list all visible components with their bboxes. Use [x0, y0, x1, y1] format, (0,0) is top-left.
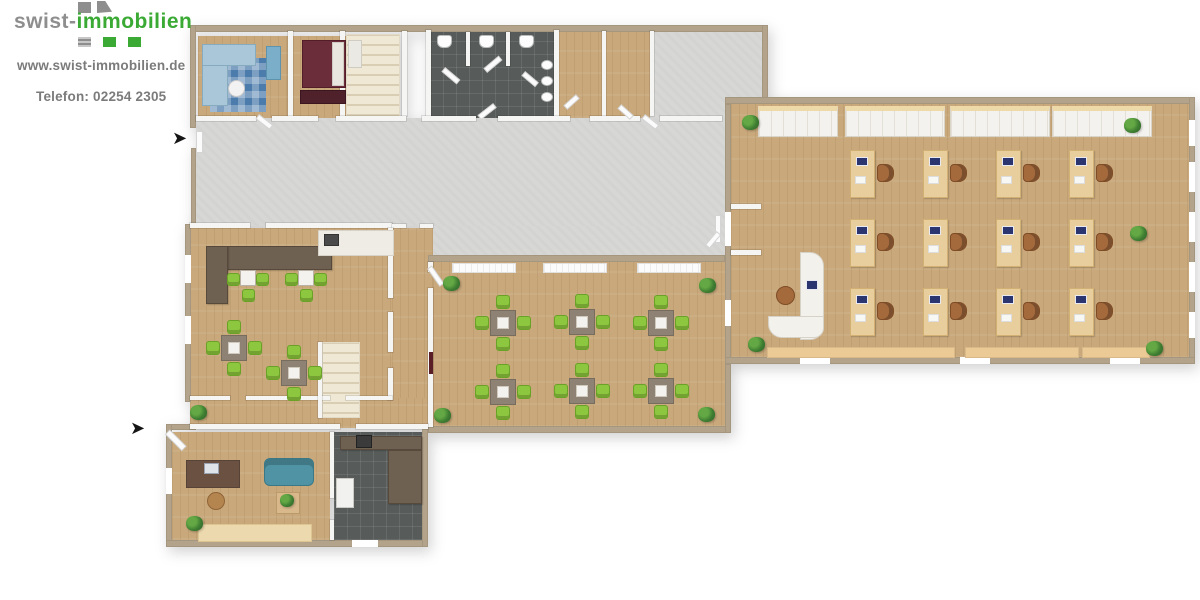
wall — [336, 116, 406, 121]
logo-block-icon — [128, 37, 141, 47]
wall — [196, 116, 256, 121]
monitor — [856, 226, 868, 235]
wall — [725, 364, 731, 433]
bistro-table — [240, 270, 256, 286]
toilet — [479, 35, 494, 48]
wall — [402, 31, 407, 116]
shelf-unit — [845, 106, 945, 137]
phone-text: Telefon: 02254 2305 — [36, 89, 166, 104]
monitor — [929, 295, 941, 304]
floor-plan — [0, 0, 1200, 600]
logo-text-suffix: immobilien — [77, 10, 193, 33]
paper — [928, 176, 939, 184]
plant — [280, 494, 294, 507]
wall — [388, 312, 393, 352]
window-blind — [543, 263, 607, 273]
green-chair — [596, 384, 610, 398]
green-chair — [654, 405, 668, 419]
green-chair — [227, 362, 241, 376]
green-chair — [654, 337, 668, 351]
logo-text-prefix: swist- — [14, 10, 77, 33]
wall — [356, 424, 428, 429]
door-leaf — [197, 132, 202, 152]
wall — [422, 116, 476, 121]
green-chair — [256, 273, 269, 286]
radiator — [767, 347, 955, 358]
monitor — [1002, 226, 1014, 235]
door-gap — [725, 212, 731, 246]
window — [185, 316, 191, 344]
meeting-table — [569, 378, 595, 404]
entrance-arrow-icon: ➤ — [172, 129, 187, 147]
meeting-table — [490, 310, 516, 336]
wardrobe — [348, 40, 362, 68]
plant — [434, 408, 451, 423]
wall — [190, 424, 340, 429]
paper — [1001, 314, 1012, 322]
monitor — [1075, 226, 1087, 235]
plant — [748, 337, 765, 352]
green-chair — [575, 336, 589, 350]
stove — [356, 435, 372, 448]
green-chair — [227, 320, 241, 334]
green-chair — [633, 384, 647, 398]
paper — [1074, 314, 1085, 322]
table-top — [497, 386, 509, 398]
table-top — [288, 367, 300, 379]
floor-plan-render: swist-immobilien www.swist-immobilien.de… — [0, 0, 1200, 600]
kitchen-counter — [388, 450, 422, 504]
green-chair — [654, 295, 668, 309]
wall — [346, 396, 392, 400]
wall — [426, 30, 431, 120]
office-chair — [1023, 233, 1040, 251]
wall — [590, 116, 640, 121]
monitor — [1002, 295, 1014, 304]
desk-chair — [207, 492, 225, 510]
radiator — [965, 347, 1079, 358]
wall — [660, 116, 722, 121]
laptop — [204, 463, 219, 474]
window — [960, 357, 990, 364]
table-top — [576, 316, 588, 328]
table-top — [655, 317, 667, 329]
green-chair — [675, 384, 689, 398]
monitor — [856, 295, 868, 304]
table-top — [228, 342, 240, 354]
wall — [266, 223, 392, 228]
wall — [392, 224, 406, 228]
green-chair — [314, 273, 327, 286]
bar-counter — [206, 246, 228, 304]
wall — [498, 116, 570, 121]
logo-block-icon — [103, 37, 116, 47]
green-chair — [575, 294, 589, 308]
window-blind — [452, 263, 516, 273]
toilet — [519, 35, 534, 48]
paper — [855, 314, 866, 322]
meeting-table — [281, 360, 307, 386]
hall-main — [196, 118, 725, 226]
meeting-table — [648, 310, 674, 336]
wall — [554, 30, 559, 120]
office-chair — [950, 302, 967, 320]
window — [1110, 357, 1140, 364]
hall-strip — [428, 226, 725, 258]
green-chair — [496, 295, 510, 309]
urinal — [541, 92, 553, 102]
green-chair — [633, 316, 647, 330]
wall — [428, 426, 731, 433]
monitor — [1075, 157, 1087, 166]
plant — [443, 276, 460, 291]
logo: swist-immobilien — [14, 10, 192, 34]
wall — [330, 432, 334, 498]
office-chair — [950, 233, 967, 251]
green-chair — [517, 385, 531, 399]
green-chair — [575, 363, 589, 377]
green-chair — [266, 366, 280, 380]
website-text: www.swist-immobilien.de — [17, 58, 185, 73]
meeting-table — [490, 379, 516, 405]
green-chair — [654, 363, 668, 377]
office-chair — [950, 164, 967, 182]
wall — [762, 25, 768, 103]
green-chair — [575, 405, 589, 419]
monitor — [929, 226, 941, 235]
wall — [318, 342, 322, 418]
green-chair — [517, 316, 531, 330]
green-chair — [287, 387, 301, 401]
monitor — [856, 157, 868, 166]
cabinet — [266, 46, 281, 80]
sofa — [202, 44, 256, 66]
table-top — [497, 317, 509, 329]
wall — [330, 520, 334, 540]
plant — [1124, 118, 1141, 133]
monitor — [1075, 295, 1087, 304]
radiator — [1082, 347, 1150, 358]
bistro-table — [298, 270, 314, 286]
wall — [185, 224, 191, 402]
urinal — [541, 60, 553, 70]
urinal — [541, 76, 553, 86]
wall — [190, 25, 196, 128]
office-chair — [877, 164, 894, 182]
window — [1189, 312, 1195, 338]
cabinet — [300, 90, 346, 104]
staircase-bottom — [322, 342, 360, 418]
wall — [190, 25, 768, 32]
green-chair — [248, 341, 262, 355]
wall — [272, 116, 318, 121]
green-chair — [675, 316, 689, 330]
green-chair — [308, 366, 322, 380]
reception-desk — [768, 316, 824, 338]
window — [1189, 212, 1195, 242]
green-chair — [475, 385, 489, 399]
plant — [742, 115, 759, 130]
pillow — [332, 42, 344, 86]
green-chair — [300, 289, 313, 302]
green-chair — [496, 406, 510, 420]
meeting-table — [221, 335, 247, 361]
plant — [186, 516, 203, 531]
green-chair — [227, 273, 240, 286]
meeting-table — [569, 309, 595, 335]
sink — [324, 234, 339, 246]
green-chair — [596, 315, 610, 329]
green-chair — [554, 315, 568, 329]
paper — [1074, 176, 1085, 184]
green-chair — [285, 273, 298, 286]
room-storage-b — [604, 32, 650, 118]
shelf-unit — [758, 106, 838, 137]
table-top — [655, 385, 667, 397]
wall — [420, 224, 433, 228]
window-blind — [637, 263, 701, 273]
paper — [928, 245, 939, 253]
green-chair — [496, 337, 510, 351]
door-gap — [352, 540, 378, 547]
coffee-table — [228, 80, 245, 97]
office-chair — [1096, 164, 1113, 182]
wall — [288, 31, 293, 116]
sofa — [264, 458, 314, 486]
office-chair — [1096, 233, 1113, 251]
window — [1189, 162, 1195, 192]
window — [800, 357, 830, 364]
monitor — [1002, 157, 1014, 166]
rug — [198, 524, 312, 542]
entrance-arrow-icon: ➤ — [130, 419, 145, 437]
wall — [422, 424, 428, 547]
green-chair — [554, 384, 568, 398]
plant — [1146, 341, 1163, 356]
wall — [190, 396, 230, 400]
window — [1189, 262, 1195, 292]
paper — [1001, 176, 1012, 184]
green-chair — [242, 289, 255, 302]
toilet — [437, 35, 452, 48]
paper — [1074, 245, 1085, 253]
office-chair — [1096, 302, 1113, 320]
wall-board — [429, 352, 433, 374]
paper — [855, 245, 866, 253]
shelf-unit — [950, 106, 1050, 137]
wall — [190, 223, 250, 228]
green-chair — [475, 316, 489, 330]
door-gap — [725, 300, 731, 326]
wall — [602, 31, 606, 116]
window — [166, 468, 172, 494]
paper — [1001, 245, 1012, 253]
wall — [731, 204, 761, 209]
plant — [1130, 226, 1147, 241]
wall — [731, 250, 761, 255]
wall — [506, 32, 510, 66]
logo-block-icon — [78, 37, 91, 47]
paper — [855, 176, 866, 184]
office-chair — [1023, 164, 1040, 182]
monitor — [806, 280, 818, 290]
meeting-table — [648, 378, 674, 404]
window — [185, 255, 191, 283]
plant — [190, 405, 207, 420]
wall — [725, 97, 1195, 104]
plant — [698, 407, 715, 422]
green-chair — [206, 341, 220, 355]
office-chair — [1023, 302, 1040, 320]
plant — [699, 278, 716, 293]
kitchen-counter — [340, 436, 422, 450]
wall — [466, 32, 470, 66]
wall — [191, 148, 196, 228]
office-chair — [877, 233, 894, 251]
wall — [650, 31, 654, 116]
fridge — [336, 478, 354, 508]
green-chair — [287, 345, 301, 359]
window — [1189, 120, 1195, 146]
wall — [428, 255, 725, 262]
office-chair — [877, 302, 894, 320]
office-chair — [776, 286, 795, 305]
paper — [928, 314, 939, 322]
table-top — [576, 385, 588, 397]
green-chair — [496, 364, 510, 378]
monitor — [929, 157, 941, 166]
